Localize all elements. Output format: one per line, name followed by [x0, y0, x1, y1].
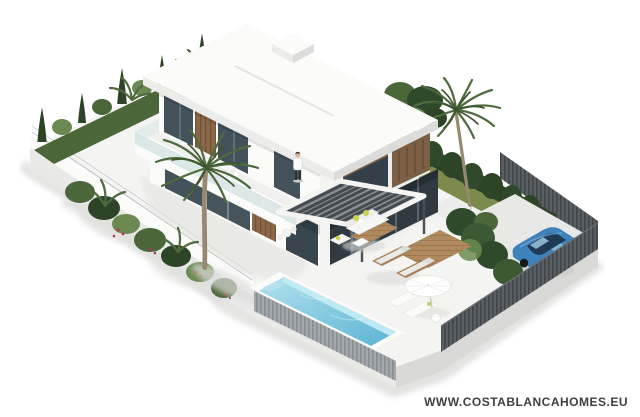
watermark: WWW.COSTABLANCAHOMES.EU [424, 395, 628, 409]
villa-render: WWW.COSTABLANCAHOMES.EU [0, 0, 640, 417]
round-table [432, 314, 441, 323]
render-canvas: WWW.COSTABLANCAHOMES.EU [0, 0, 640, 417]
person-torso [294, 158, 303, 170]
